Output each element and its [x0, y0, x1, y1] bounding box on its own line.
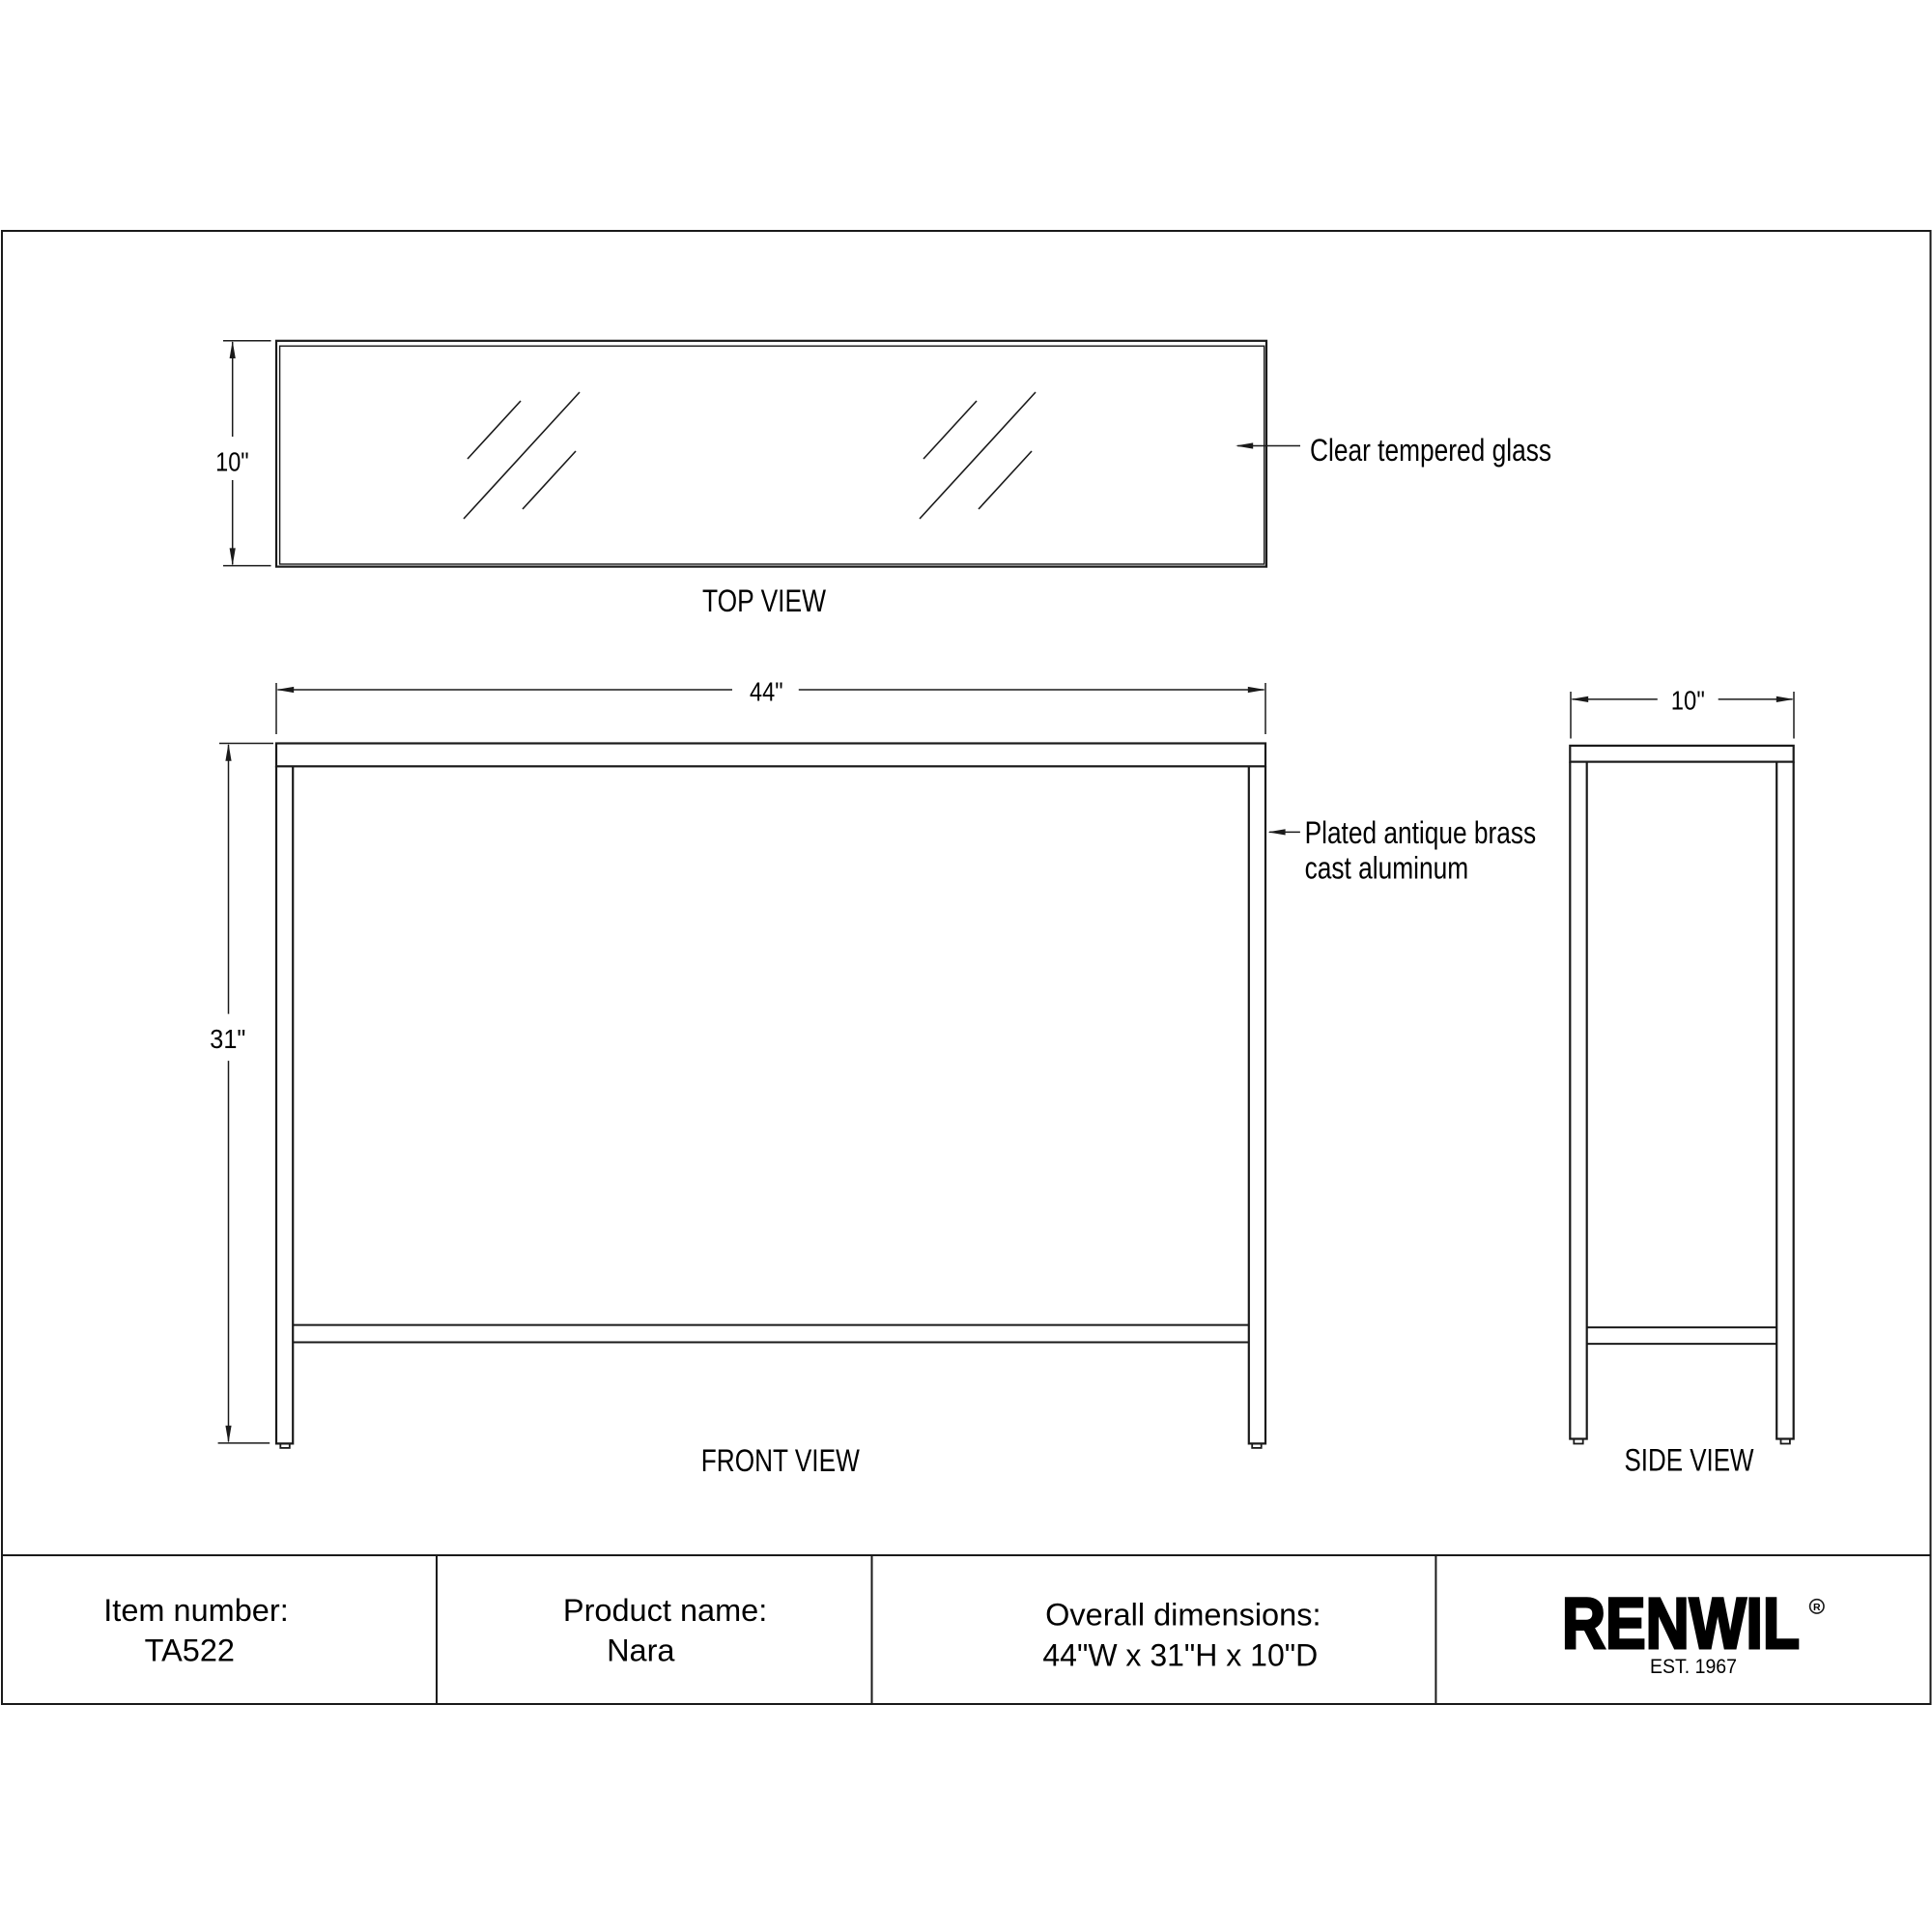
svg-text:FRONT VIEW: FRONT VIEW [701, 1443, 861, 1478]
svg-text:44"W x 31"H x 10"D: 44"W x 31"H x 10"D [1042, 1637, 1318, 1672]
svg-text:SIDE VIEW: SIDE VIEW [1625, 1443, 1755, 1478]
svg-text:44": 44" [750, 676, 783, 706]
svg-text:TA522: TA522 [145, 1634, 235, 1668]
svg-text:TOP VIEW: TOP VIEW [702, 583, 827, 618]
svg-text:10": 10" [1671, 686, 1705, 716]
svg-text:10": 10" [215, 446, 249, 476]
svg-text:cast aluminum: cast aluminum [1305, 850, 1469, 885]
svg-text:EST. 1967: EST. 1967 [1650, 1655, 1737, 1678]
svg-text:RENWIL: RENWIL [1562, 1583, 1800, 1663]
svg-text:Plated antique brass: Plated antique brass [1305, 815, 1537, 850]
svg-text:Item number:: Item number: [103, 1593, 288, 1628]
svg-text:31": 31" [210, 1024, 245, 1054]
svg-text:R: R [1813, 1602, 1821, 1613]
svg-text:Nara: Nara [607, 1634, 675, 1668]
svg-text:Product name:: Product name: [563, 1593, 767, 1628]
svg-text:Overall dimensions:: Overall dimensions: [1045, 1598, 1321, 1633]
svg-text:Clear tempered glass: Clear tempered glass [1310, 433, 1551, 468]
